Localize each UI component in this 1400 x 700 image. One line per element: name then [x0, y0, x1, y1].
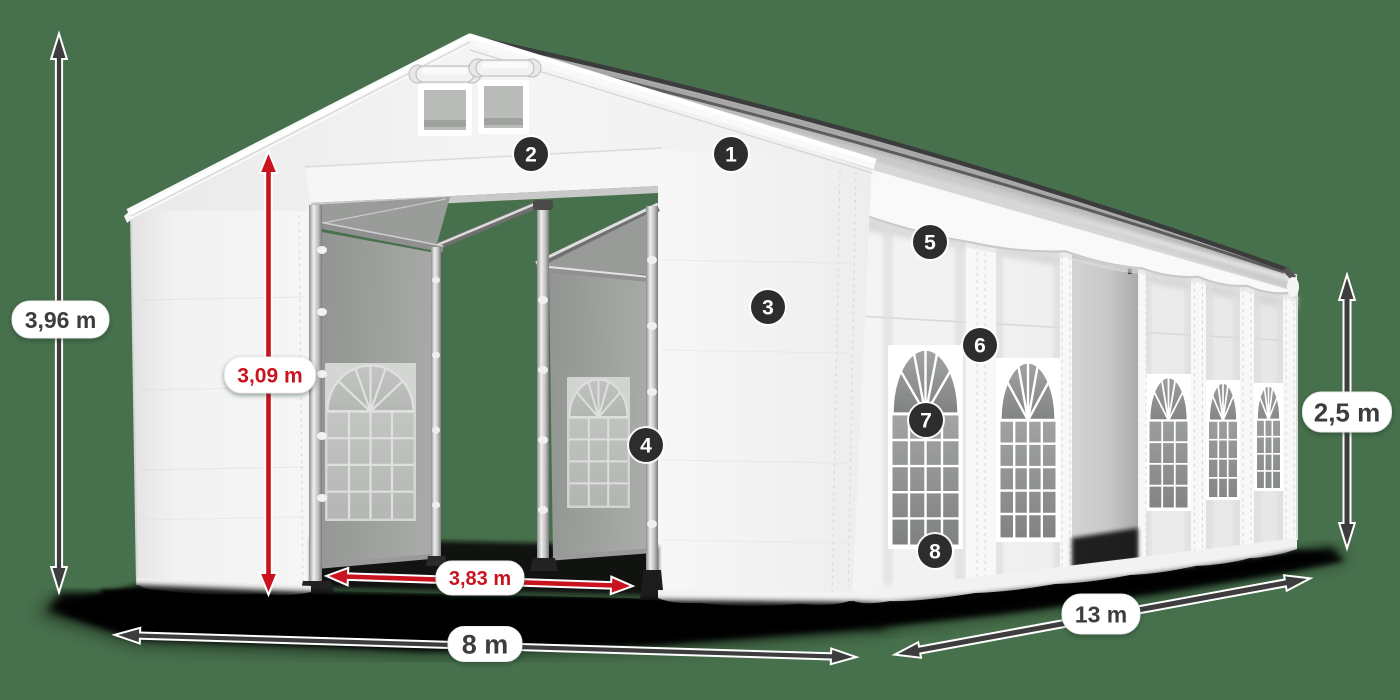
svg-text:7: 7 — [920, 410, 932, 433]
svg-text:2: 2 — [525, 144, 537, 167]
svg-text:3: 3 — [762, 297, 774, 320]
svg-text:5: 5 — [924, 232, 936, 255]
svg-text:8 m: 8 m — [462, 630, 509, 660]
svg-text:8: 8 — [929, 541, 941, 564]
svg-text:3,09 m: 3,09 m — [237, 365, 302, 388]
svg-text:2,5 m: 2,5 m — [1314, 397, 1381, 427]
svg-text:3,96 m: 3,96 m — [25, 307, 97, 333]
svg-text:4: 4 — [640, 435, 652, 458]
svg-text:13 m: 13 m — [1075, 601, 1127, 627]
svg-text:1: 1 — [725, 144, 737, 167]
svg-text:6: 6 — [974, 335, 986, 358]
svg-text:3,83 m: 3,83 m — [449, 568, 511, 590]
